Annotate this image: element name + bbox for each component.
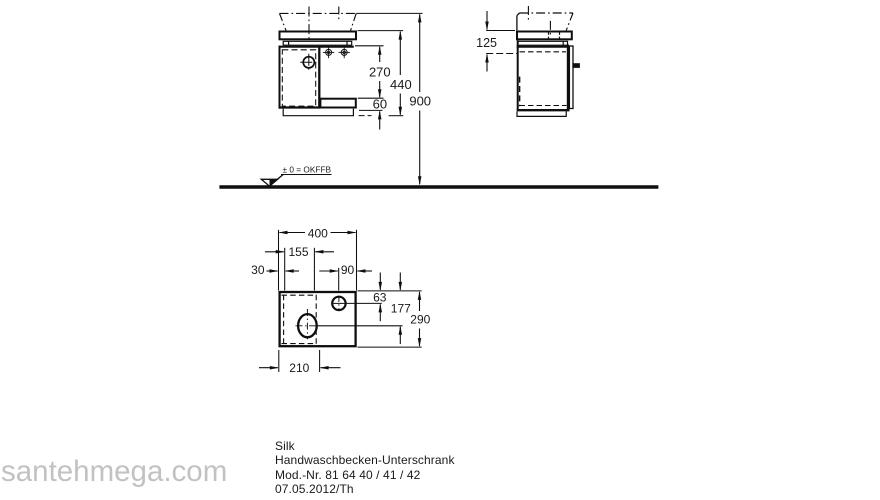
svg-text:270: 270 [369,65,391,80]
svg-text:440: 440 [390,77,412,92]
svg-text:210: 210 [289,361,309,375]
svg-text:177: 177 [391,302,411,316]
svg-text:155: 155 [288,245,308,259]
svg-text:60: 60 [373,97,387,112]
svg-text:900: 900 [409,93,431,108]
svg-text:125: 125 [476,36,497,50]
svg-text:30: 30 [251,263,265,277]
svg-text:63: 63 [373,291,387,305]
svg-text:290: 290 [410,313,430,327]
svg-text:400: 400 [308,227,328,241]
svg-text:± 0 = OKFFB: ± 0 = OKFFB [283,165,332,175]
svg-text:90: 90 [341,263,355,277]
